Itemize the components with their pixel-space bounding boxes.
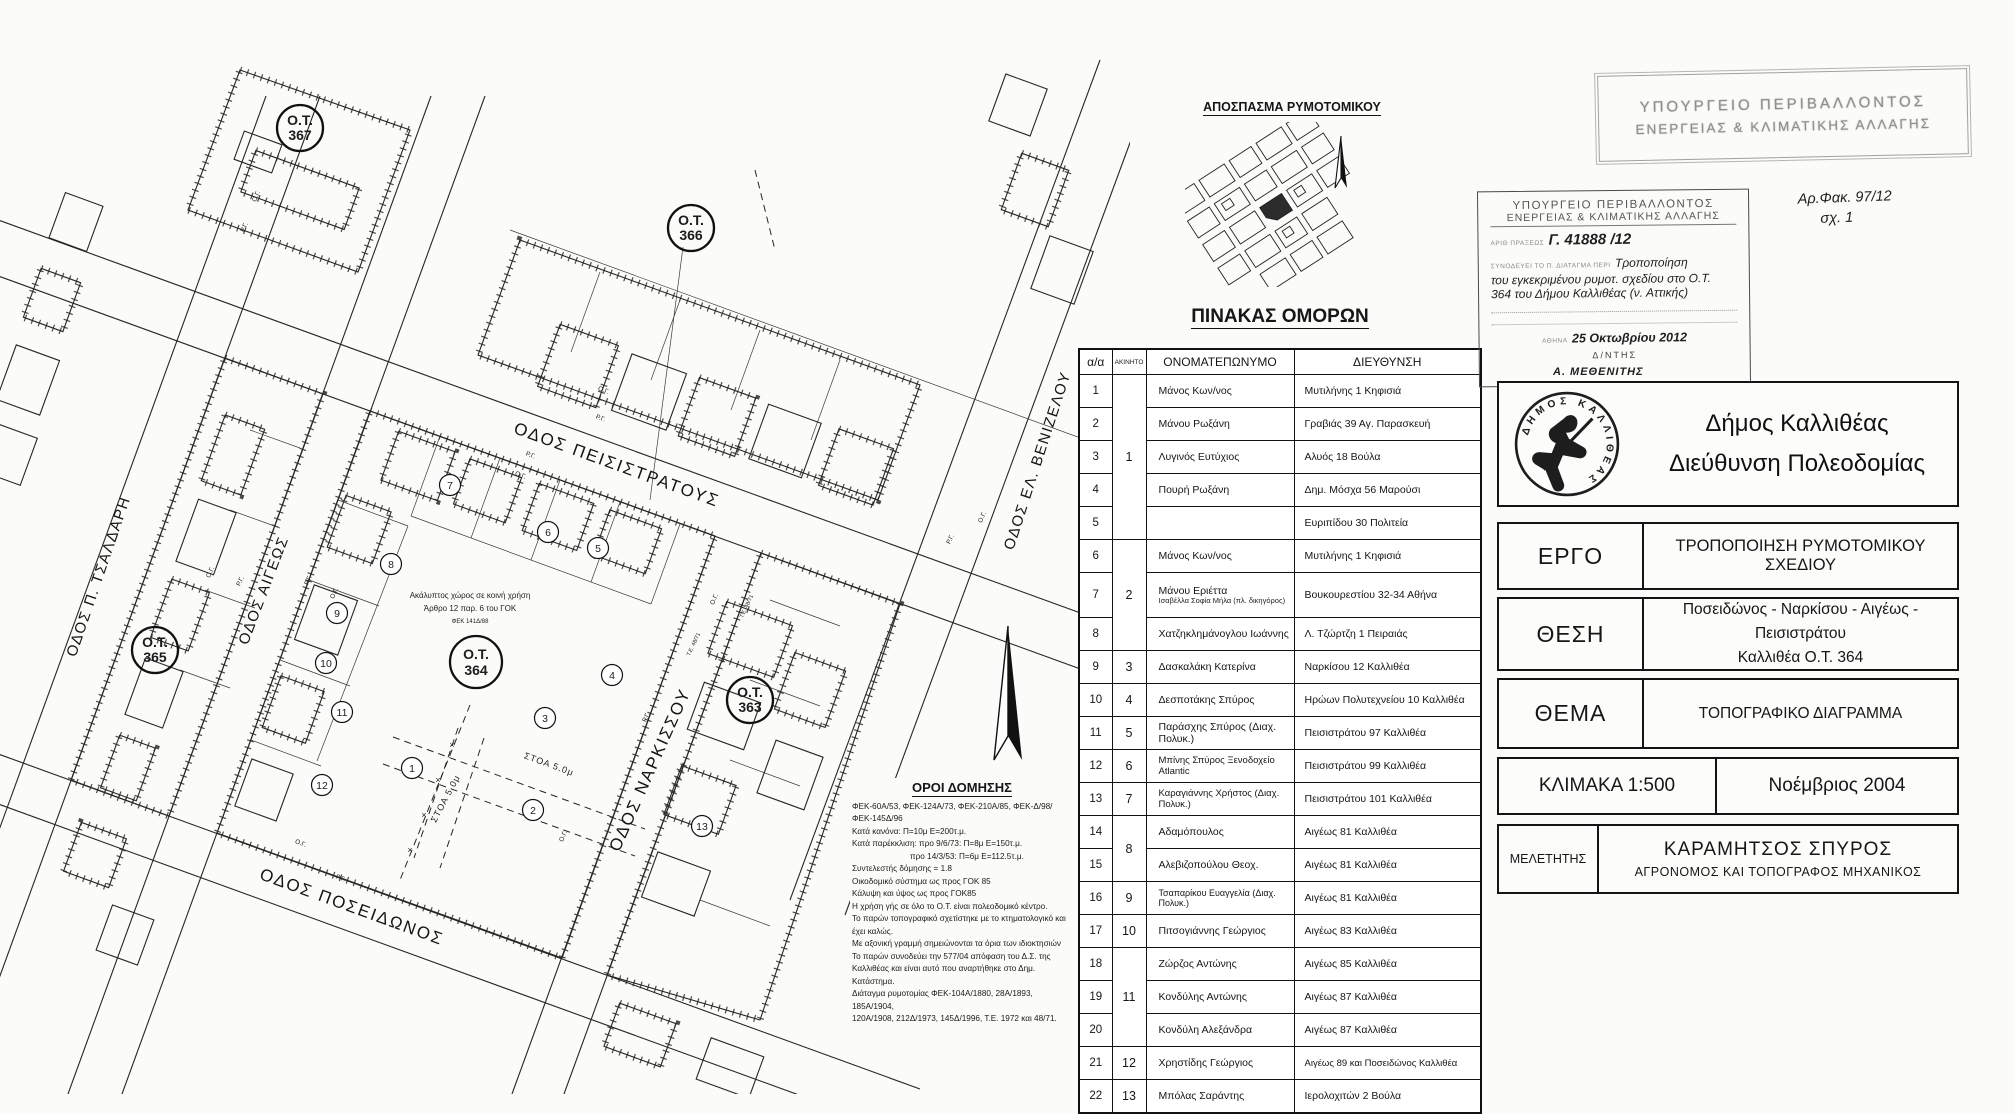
cell-property: 3 <box>1112 651 1146 684</box>
cell-address: Αιγέως 81 Καλλιθέα <box>1294 882 1481 915</box>
cell-name: Λυγινός Ευτύχιος <box>1146 441 1294 474</box>
svg-text:9: 9 <box>334 608 340 620</box>
common-space-note: Ακάλυπτος χώρος σε κοινή χρήση Άρθρο 12 … <box>410 591 531 625</box>
building-terms-line: Κατά κανόνα: Π=10μ Ε=200τ.μ. <box>852 826 1072 838</box>
cell-address: Αλυός 18 Βούλα <box>1294 441 1481 474</box>
cell-property: 2 <box>1112 540 1146 651</box>
inset-north-arrow-icon <box>1335 136 1347 188</box>
block-outlines <box>71 70 920 1020</box>
svg-text:Ρ.Γ.: Ρ.Γ. <box>303 574 314 586</box>
cell-property: 12 <box>1112 1047 1146 1080</box>
svg-text:363: 363 <box>738 699 762 715</box>
building-terms-line: Κάλυψη και ύψος ως προς ΓΟΚ85 <box>852 888 1072 900</box>
cell-address: Αιγέως 81 Καλλιθέα <box>1294 816 1481 849</box>
street-label-venizelou: ΟΔΟΣ ΕΛ. ΒΕΝΙΖΕΛΟΥ <box>1001 369 1075 552</box>
scale-value: ΚΛΙΜΑΚΑ 1:500 <box>1499 759 1717 813</box>
cell-address: Ηρώων Πολυτεχνείου 10 Καλλιθέα <box>1294 684 1481 717</box>
sheet-number: σχ. 1 <box>1820 208 1893 227</box>
decree-text: του εγκεκριμένου ρυμοτ. σχεδίου στο Ο.Τ. <box>1491 271 1737 288</box>
cell-name: Πουρή Ρωξάνη <box>1146 474 1294 507</box>
cell-aa: 11 <box>1079 717 1112 750</box>
subject-label: ΘΕΜΑ <box>1499 680 1644 747</box>
cell-aa: 15 <box>1079 849 1112 882</box>
axis-x-mark: × <box>435 775 440 785</box>
svg-text:Ο.Τ.: Ο.Τ. <box>287 112 313 128</box>
cell-address: Γραβιάς 39 Αγ. Παρασκευή <box>1294 408 1481 441</box>
cell-name: Κονδύλη Αλεξάνδρα <box>1146 1014 1294 1047</box>
date-value: 25 Οκτωβρίου 2012 <box>1572 330 1687 345</box>
cell-address: Πεισιστράτου 97 Καλλιθέα <box>1294 717 1481 750</box>
table-row: 1811Ζώρζος ΑντώνηςΑιγέως 85 Καλλιθέα <box>1079 948 1481 981</box>
table-row: 11Μάνος Κων/νοςΜυτιλήνης 1 Κηφισιά <box>1079 375 1481 408</box>
building-terms-line: 120Α/1908, 212Δ/1973, 145Δ/1996, Τ.Ε. 19… <box>852 1013 1072 1025</box>
location-label: ΘΕΣΗ <box>1499 599 1644 669</box>
table-row: 104Δεσποτάκης ΣπύροςΗρώων Πολυτεχνείου 1… <box>1079 684 1481 717</box>
municipality-title-block: ΔΗΜΟΣ ΚΑΛΛΙΘΕΑΣ Δήμος Καλλιθέας Διεύθυνσ… <box>1497 381 1959 507</box>
svg-text:364: 364 <box>464 662 488 678</box>
street-label-aigeos: ΟΔΟΣ ΑΙΓΕΩΣ <box>235 534 292 647</box>
cell-address: Ναρκίσου 12 Καλλιθέα <box>1294 651 1481 684</box>
building-terms-line: Καλλιθέας και είναι αυτό που αναρτήθηκε … <box>852 963 1072 988</box>
building-terms-line: προ 14/3/53: Π=6μ Ε=112.5τ.μ. <box>852 851 1072 863</box>
svg-text:Ρ.Γ.: Ρ.Γ. <box>595 414 607 424</box>
cell-name: Δασκαλάκη Κατερίνα <box>1146 651 1294 684</box>
stoa-label: ΣΤΟΑ 5.0μ <box>523 751 576 778</box>
cell-name: Αδαμόπουλος <box>1146 816 1294 849</box>
dotted-line <box>1491 311 1737 326</box>
cell-aa: 19 <box>1079 981 1112 1014</box>
cell-aa: 17 <box>1079 915 1112 948</box>
col-header-name: ΟΝΟΜΑΤΕΠΩΝΥΜΟ <box>1146 349 1294 375</box>
svg-text:Ο.Τ.: Ο.Τ. <box>737 684 763 700</box>
location-block-number: Καλλιθέα Ο.Τ. 364 <box>1738 646 1863 670</box>
cell-name <box>1146 507 1294 540</box>
file-number: Αρ.Φακ. 97/12 <box>1797 188 1892 207</box>
cell-name: Παράσχης Σπύρος (Διαχ. Πολυκ.) <box>1146 717 1294 750</box>
inset-map <box>1185 122 1375 287</box>
subject-block: ΘΕΜΑ ΤΟΠΟΓΡΑΦΙΚΟ ΔΙΑΓΡΑΜΜΑ <box>1497 678 1959 749</box>
cell-property: 6 <box>1112 750 1146 783</box>
building-terms-line: Το παρών τοπογραφικό σχετίστηκε με το κτ… <box>852 913 1072 938</box>
building-terms-line: ΦΕΚ-60Α/53, ΦΕΚ-124Α/73, ΦΕΚ-210Α/85, ΦΕ… <box>852 801 1072 826</box>
cell-address: Βουκουρεστίου 32-34 Αθήνα <box>1294 573 1481 618</box>
cell-address: Ευριπίδου 30 Πολιτεία <box>1294 507 1481 540</box>
table-row: 169Τσαπαρίκου Ευαγγελία (Διαχ. Πολυκ.)Αι… <box>1079 882 1481 915</box>
cell-name: Χατζηκλημάνογλου Ιωάννης <box>1146 618 1294 651</box>
surveyor-block: ΜΕΛΕΤΗΤΗΣ ΚΑΡΑΜΗΤΣΟΣ ΣΠΥΡΟΣ ΑΓΡΟΝΟΜΟΣ ΚΑ… <box>1497 824 1959 894</box>
cell-aa: 7 <box>1079 573 1112 618</box>
svg-text:5: 5 <box>595 543 601 555</box>
svg-text:12: 12 <box>316 780 328 792</box>
axis-x-mark: × <box>407 845 412 855</box>
svg-text:2: 2 <box>530 805 536 817</box>
municipality-name: Δήμος Καλλιθέας <box>1637 404 1957 444</box>
municipal-seal: ΔΗΜΟΣ ΚΑΛΛΙΘΕΑΣ <box>1511 388 1623 505</box>
table-row: 137Καραγιάννης Χρήστος (Διαχ. Πολυκ.)Πει… <box>1079 783 1481 816</box>
cell-aa: 1 <box>1079 375 1112 408</box>
svg-text:8: 8 <box>388 559 394 571</box>
building-terms-line: Οικοδομικό σύστημα ως προς ΓΟΚ 85 <box>852 876 1072 888</box>
cell-name: Πιτσογιάννης Γεώργιος <box>1146 915 1294 948</box>
cell-address: Αιγέως 87 Καλλιθέα <box>1294 981 1481 1014</box>
ot-circle-363: Ο.Τ. 363 <box>727 677 773 723</box>
svg-text:Ρ.Γ.: Ρ.Γ. <box>525 451 537 461</box>
building-terms-line: Διάταγμα ρυμοτομίας ΦΕΚ-104Α/1880, 28Α/1… <box>852 988 1072 1013</box>
stamp-line: ΕΝΕΡΓΕΙΑΣ & ΚΛΙΜΑΤΙΚΗΣ ΑΛΛΑΓΗΣ <box>1635 116 1931 137</box>
svg-text:11: 11 <box>337 707 348 719</box>
stamp-line: ΕΝΕΡΓΕΙΑΣ & ΚΛΙΜΑΤΙΚΗΣ ΑΛΛΑΓΗΣ <box>1490 210 1736 228</box>
cell-address: Ιερολοχιτών 2 Βούλα <box>1294 1080 1481 1114</box>
svg-text:Τ.Ε. 48/71: Τ.Ε. 48/71 <box>686 632 702 657</box>
svg-text:Ο.Τ.: Ο.Τ. <box>678 212 704 228</box>
svg-text:4: 4 <box>609 670 615 682</box>
building-terms-title: ΟΡΟΙ ΔΟΜΗΣΗΣ <box>852 780 1072 795</box>
table-row: 1710Πιτσογιάννης ΓεώργιοςΑιγέως 83 Καλλι… <box>1079 915 1481 948</box>
scale-date-block: ΚΛΙΜΑΚΑ 1:500 Νοέμβριος 2004 <box>1497 757 1959 815</box>
cell-aa: 6 <box>1079 540 1112 573</box>
cell-name: Μάνου ΕριέτταΙσαβέλλα Σοφία Μήλα (πλ. δι… <box>1146 573 1294 618</box>
cell-name: Ζώρζος Αντώνης <box>1146 948 1294 981</box>
ministry-approval-stamp: ΥΠΟΥΡΓΕΙΟ ΠΕΡΙΒΑΛΛΟΝΤΟΣ ΕΝΕΡΓΕΙΑΣ & ΚΛΙΜ… <box>1477 189 1751 388</box>
municipality-department: Διεύθυνση Πολεοδομίας <box>1637 444 1957 484</box>
street-label-narkissou: ΟΔΟΣ ΝΑΡΚΙΣΣΟΥ <box>605 685 694 854</box>
svg-text:13: 13 <box>696 821 708 833</box>
svg-text:365: 365 <box>143 649 167 665</box>
cell-name: Καραγιάννης Χρήστος (Διαχ. Πολυκ.) <box>1146 783 1294 816</box>
cell-aa: 3 <box>1079 441 1112 474</box>
seal-figure-icon <box>1532 415 1586 491</box>
cell-address: Αιγέως 85 Καλλιθέα <box>1294 948 1481 981</box>
cell-address: Αιγέως 89 και Ποσειδώνος Καλλιθέα <box>1294 1047 1481 1080</box>
location-block: ΘΕΣΗ Ποσειδώνος - Ναρκίσου - Αιγέως - Πε… <box>1497 597 1959 671</box>
cell-name: Μάνου Ρωξάνη <box>1146 408 1294 441</box>
cell-property: 5 <box>1112 717 1146 750</box>
cell-name: Δεσποτάκης Σπύρος <box>1146 684 1294 717</box>
cell-aa: 22 <box>1079 1080 1112 1114</box>
svg-text:Ο.Γ.: Ο.Γ. <box>514 470 527 481</box>
file-number-note: Αρ.Φακ. 97/12 σχ. 1 <box>1797 188 1892 227</box>
svg-text:Ακάλυπτος χώρος σε κοινή χρήση: Ακάλυπτος χώρος σε κοινή χρήση <box>410 591 531 600</box>
cell-address: Λ. Τζώρτζη 1 Πειραιάς <box>1294 618 1481 651</box>
subject-value: ΤΟΠΟΓΡΑΦΙΚΟ ΔΙΑΓΡΑΜΜΑ <box>1699 702 1902 726</box>
project-value: ΤΡΟΠΟΠΟΙΗΣΗ ΡΥΜΟΤΟΜΙΚΟΥ ΣΧΕΔΙΟΥ <box>1644 537 1957 575</box>
svg-text:Ρ.Γ.: Ρ.Γ. <box>335 874 347 884</box>
svg-text:Ο.Γ.: Ο.Γ. <box>709 592 720 606</box>
date-row: ΑΘΗΝΑ 25 Οκτωβρίου 2012 <box>1491 328 1737 349</box>
cell-name: Χρηστίδης Γεώργιος <box>1146 1047 1294 1080</box>
date-value: Νοέμβριος 2004 <box>1717 759 1957 813</box>
signer-title: Δ/ΝΤΗΣ <box>1492 349 1738 362</box>
cell-aa: 20 <box>1079 1014 1112 1047</box>
cell-property: 13 <box>1112 1080 1146 1114</box>
building-terms-line: Κατά παρέκκλιση: προ 9/6/73: Π=8μ Ε=150τ… <box>852 838 1072 850</box>
ot-circle-366: Ο.Τ. 366 <box>668 205 714 251</box>
col-header-address: ΔΙΕΥΘΥΝΣΗ <box>1294 349 1481 375</box>
cell-address: Δημ. Μόσχα 56 Μαρούσι <box>1294 474 1481 507</box>
building-terms-line: Με αξονική γραμμή σημειώνονται τα όρια τ… <box>852 938 1072 950</box>
cell-address: Μυτιλήνης 1 Κηφισιά <box>1294 375 1481 408</box>
cell-name: Τσαπαρίκου Ευαγγελία (Διαχ. Πολυκ.) <box>1146 882 1294 915</box>
svg-text:1: 1 <box>409 763 415 775</box>
cell-aa: 8 <box>1079 618 1112 651</box>
ministry-stamp-faded: ΥΠΟΥΡΓΕΙΟ ΠΕΡΙΒΑΛΛΟΝΤΟΣ ΕΝΕΡΓΕΙΑΣ & ΚΛΙΜ… <box>1597 68 1969 162</box>
decree-label: ΣΥΝΟΔΕΥΕΙ ΤΟ Π. ΔΙΑΤΑΓΜΑ ΠΕΡΙ <box>1491 262 1611 270</box>
axis-x-mark: × <box>421 810 426 820</box>
cell-aa: 10 <box>1079 684 1112 717</box>
handwritten-signature: Α. ΜΕΘΕΝΙΤΗΣ <box>1553 366 1644 378</box>
neighbors-table-title: ΠΙΝΑΚΑΣ ΟΜΟΡΩΝ <box>1180 306 1380 328</box>
cell-aa: 14 <box>1079 816 1112 849</box>
table-row: 115Παράσχης Σπύρος (Διαχ. Πολυκ.)Πεισιστ… <box>1079 717 1481 750</box>
svg-text:Ο.Τ.: Ο.Τ. <box>463 646 489 662</box>
table-row: 2112Χρηστίδης ΓεώργιοςΑιγέως 89 και Ποσε… <box>1079 1047 1481 1080</box>
svg-text:7: 7 <box>447 480 453 492</box>
cell-aa: 13 <box>1079 783 1112 816</box>
ot-circle-364: Ο.Τ. 364 <box>450 636 502 688</box>
cell-name: Μάνος Κων/νος <box>1146 375 1294 408</box>
cell-property: 8 <box>1112 816 1146 882</box>
cell-property: 11 <box>1112 948 1146 1047</box>
stamp-line: ΥΠΟΥΡΓΕΙΟ ΠΕΡΙΒΑΛΛΟΝΤΟΣ <box>1639 93 1926 116</box>
surveyor-label: ΜΕΛΕΤΗΤΗΣ <box>1499 826 1599 892</box>
cell-aa: 12 <box>1079 750 1112 783</box>
inset-blocks <box>1185 122 1375 287</box>
building-terms-line: Η χρήση γής σε όλο το Ο.Τ. είναι πολεοδο… <box>852 901 1072 913</box>
building-terms-block: ΟΡΟΙ ΔΟΜΗΣΗΣ ΦΕΚ-60Α/53, ΦΕΚ-124Α/73, ΦΕ… <box>850 778 1074 1027</box>
cell-property: 9 <box>1112 882 1146 915</box>
building-terms-line: Το παρών συνοδεύει την 577/04 απόφαση το… <box>852 951 1072 963</box>
cell-address: Πεισιστράτου 99 Καλλιθέα <box>1294 750 1481 783</box>
cell-name: Κονδύλης Αντώνης <box>1146 981 1294 1014</box>
cell-aa: 2 <box>1079 408 1112 441</box>
svg-text:Άρθρο 12 παρ. 6 του ΓΟΚ: Άρθρο 12 παρ. 6 του ΓΟΚ <box>424 604 517 613</box>
praxis-label: ΑΡΙΘ ΠΡΑΞΕΩΣ <box>1490 240 1544 248</box>
svg-text:3: 3 <box>542 713 548 725</box>
ot-circle-367: Ο.Τ. 367 <box>277 105 323 151</box>
cell-address: Πεισιστράτου 101 Καλλιθέα <box>1294 783 1481 816</box>
cell-aa: 5 <box>1079 507 1112 540</box>
neighbors-table: α/α ΑΚΙΝΗΤΟ ΟΝΟΜΑΤΕΠΩΝΥΜΟ ΔΙΕΥΘΥΝΣΗ 11Μά… <box>1078 348 1482 1114</box>
table-header-row: α/α ΑΚΙΝΗΤΟ ΟΝΟΜΑΤΕΠΩΝΥΜΟ ΔΙΕΥΘΥΝΣΗ <box>1079 349 1481 375</box>
svg-text:6: 6 <box>545 527 551 539</box>
cell-address: Μυτιλήνης 1 Κηφισιά <box>1294 540 1481 573</box>
svg-text:Ο.Τ.: Ο.Τ. <box>142 634 168 650</box>
svg-text:Ρ.Γ.: Ρ.Γ. <box>235 575 246 587</box>
street-label-tsaldari: ΟΔΟΣ Π. ΤΣΑΛΔΑΡΗ <box>63 494 134 659</box>
svg-text:ΦΕΚ 141Δ/88: ΦΕΚ 141Δ/88 <box>452 619 489 625</box>
inset-map-title: ΑΠΟΣΠΑΣΜΑ ΡΥΜΟΤΟΜΙΚΟΥ <box>1187 100 1397 114</box>
decree-text: Τροποποίηση <box>1615 255 1688 270</box>
praxis-row: ΑΡΙΘ ΠΡΑΞΕΩΣ Γ. 41888 /12 <box>1490 230 1736 251</box>
cell-address: Αιγέως 87 Καλλιθέα <box>1294 1014 1481 1047</box>
svg-text:Ο.Γ.: Ο.Γ. <box>977 510 988 524</box>
project-label: ΕΡΓΟ <box>1499 524 1644 588</box>
cell-aa: 4 <box>1079 474 1112 507</box>
cell-aa: 21 <box>1079 1047 1112 1080</box>
table-row: 93Δασκαλάκη ΚατερίναΝαρκίσου 12 Καλλιθέα <box>1079 651 1481 684</box>
cell-property: 1 <box>1112 375 1146 540</box>
svg-text:366: 366 <box>679 227 703 243</box>
svg-text:Ο.Γ.: Ο.Γ. <box>251 189 262 203</box>
cell-property: 7 <box>1112 783 1146 816</box>
svg-text:367: 367 <box>288 127 312 143</box>
location-streets: Ποσειδώνος - Ναρκίσου - Αιγέως - Πεισιστ… <box>1644 598 1957 646</box>
table-row: 148ΑδαμόπουλοςΑιγέως 81 Καλλιθέα <box>1079 816 1481 849</box>
building-terms-line: Συντελεστής δόμησης = 1.8 <box>852 863 1072 875</box>
table-row: 62Μάνος Κων/νοςΜυτιλήνης 1 Κηφισιά <box>1079 540 1481 573</box>
cell-name: Αλεβιζοπούλου Θεοχ. <box>1146 849 1294 882</box>
city-label: ΑΘΗΝΑ <box>1542 337 1568 344</box>
ot-circle-365: Ο.Τ. 365 <box>132 627 178 673</box>
cell-address: Αιγέως 81 Καλλιθέα <box>1294 849 1481 882</box>
svg-text:10: 10 <box>320 658 332 670</box>
praxis-value: Γ. 41888 /12 <box>1549 231 1632 249</box>
svg-text:Ρ.Γ.: Ρ.Γ. <box>945 533 956 545</box>
cell-property: 10 <box>1112 915 1146 948</box>
cell-address: Αιγέως 83 Καλλιθέα <box>1294 915 1481 948</box>
svg-text:Ο.Γ.: Ο.Γ. <box>597 385 610 396</box>
col-header-aa: α/α <box>1079 349 1112 375</box>
col-header-property: ΑΚΙΝΗΤΟ <box>1112 349 1146 375</box>
cell-aa: 16 <box>1079 882 1112 915</box>
cell-name: Μπίνης Σπύρος Ξενοδοχείο Atlantic <box>1146 750 1294 783</box>
table-row: 2213Μπόλας ΣαράντηςΙερολοχιτών 2 Βούλα <box>1079 1080 1481 1114</box>
stoa-lines <box>383 705 645 880</box>
cell-aa: 9 <box>1079 651 1112 684</box>
table-row: 126Μπίνης Σπύρος Ξενοδοχείο AtlanticΠεισ… <box>1079 750 1481 783</box>
cell-aa: 18 <box>1079 948 1112 981</box>
cell-name: Μπόλας Σαράντης <box>1146 1080 1294 1114</box>
cell-property: 4 <box>1112 684 1146 717</box>
surveyor-title: ΑΓΡΟΝΟΜΟΣ ΚΑΙ ΤΟΠΟΓΡΑΦΟΣ ΜΗΧΑΝΙΚΟΣ <box>1635 865 1922 879</box>
svg-text:Ο.Γ.: Ο.Γ. <box>294 838 307 849</box>
surveyor-name: ΚΑΡΑΜΗΤΣΟΣ ΣΠΥΡΟΣ <box>1664 839 1892 861</box>
project-block: ΕΡΓΟ ΤΡΟΠΟΠΟΙΗΣΗ ΡΥΜΟΤΟΜΙΚΟΥ ΣΧΕΔΙΟΥ <box>1497 522 1959 590</box>
axis-x-mark: × <box>449 740 454 750</box>
cell-name: Μάνος Κων/νος <box>1146 540 1294 573</box>
